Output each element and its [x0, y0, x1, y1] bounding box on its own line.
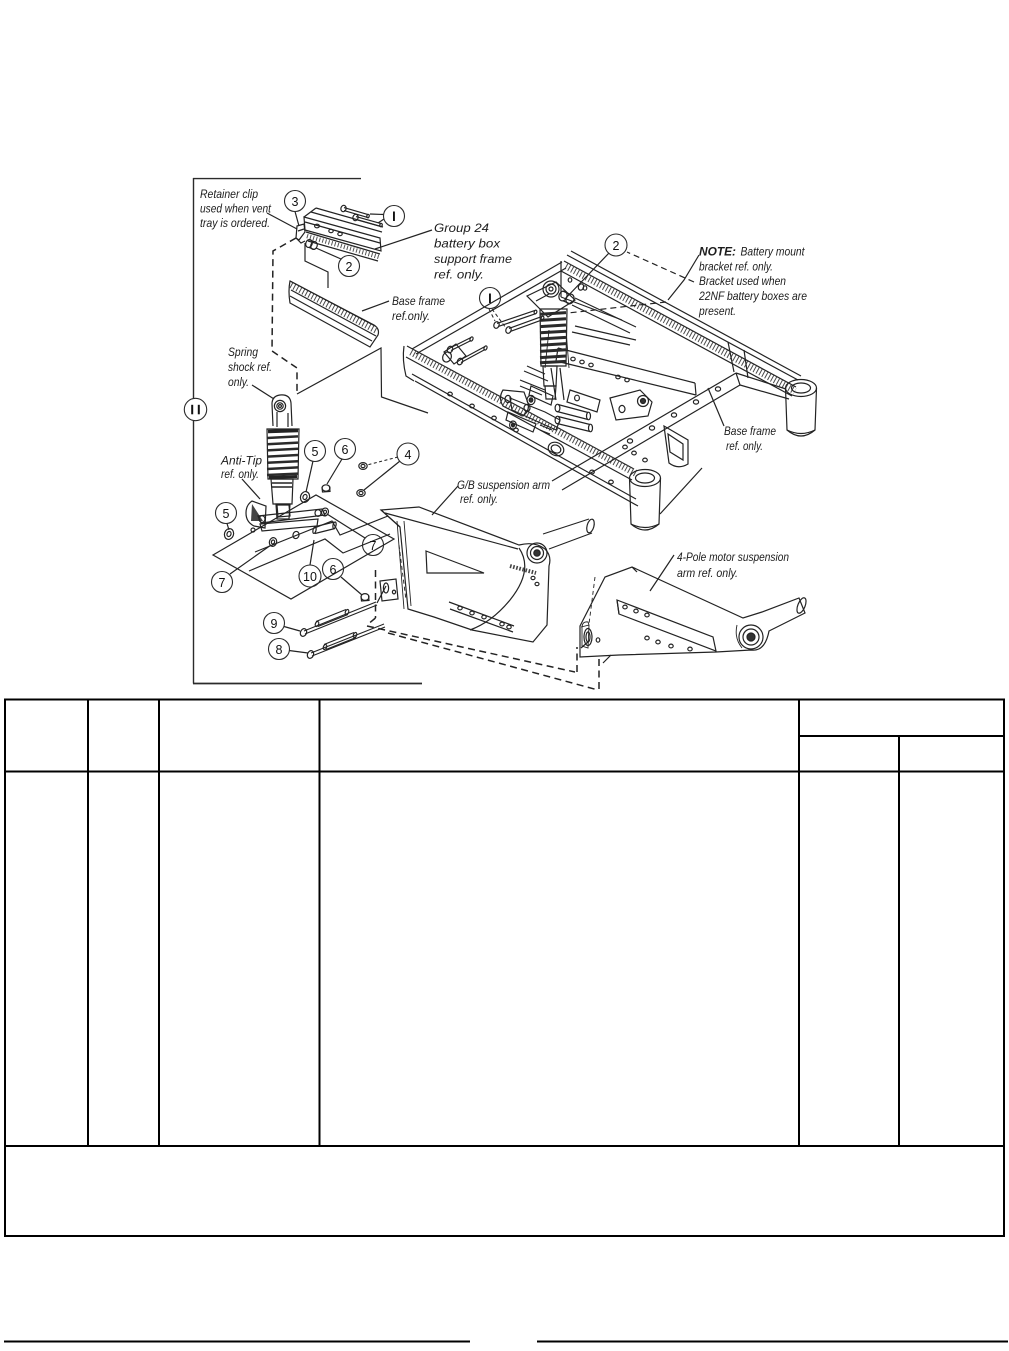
svg-text:Group 24: Group 24 [434, 221, 489, 235]
svg-text:ref. only.: ref. only. [221, 467, 259, 481]
svg-text:used when vent: used when vent [200, 202, 272, 216]
svg-text:Battery mount: Battery mount [741, 245, 806, 259]
svg-text:Base frame: Base frame [392, 294, 445, 308]
svg-text:support frame: support frame [434, 252, 512, 266]
svg-text:Spring: Spring [228, 345, 258, 359]
svg-text:7: 7 [370, 539, 377, 553]
svg-text:2: 2 [346, 260, 353, 274]
svg-text:NOTE:: NOTE: [699, 245, 736, 259]
svg-text:22NF battery boxes are: 22NF battery boxes are [698, 289, 807, 303]
svg-text:present.: present. [698, 304, 736, 318]
svg-text:6: 6 [330, 563, 337, 577]
svg-text:5: 5 [223, 507, 230, 521]
svg-text:10: 10 [303, 570, 317, 584]
svg-text:arm ref. only.: arm ref. only. [677, 566, 738, 580]
svg-text:3: 3 [292, 195, 299, 209]
svg-text:7: 7 [219, 576, 226, 590]
svg-text:only.: only. [228, 375, 249, 389]
svg-text:Bracket used when: Bracket used when [699, 274, 786, 288]
svg-text:ref. only.: ref. only. [726, 439, 763, 453]
svg-text:5: 5 [312, 445, 319, 459]
svg-text:bracket ref. only.: bracket ref. only. [699, 260, 773, 274]
svg-text:G/B suspension arm: G/B suspension arm [457, 478, 550, 492]
svg-text:2: 2 [613, 239, 620, 253]
svg-text:shock ref.: shock ref. [228, 360, 272, 374]
svg-text:Anti-Tip: Anti-Tip [220, 454, 262, 468]
svg-text:4-Pole motor suspension: 4-Pole motor suspension [677, 550, 789, 564]
svg-text:4: 4 [405, 448, 412, 462]
svg-text:ref. only.: ref. only. [460, 492, 498, 506]
svg-text:ref.only.: ref.only. [392, 309, 430, 323]
svg-text:6: 6 [342, 443, 349, 457]
svg-text:9: 9 [271, 617, 278, 631]
svg-text:Retainer clip: Retainer clip [200, 187, 258, 201]
svg-text:Base frame: Base frame [724, 424, 776, 438]
svg-text:battery box: battery box [434, 237, 501, 251]
svg-text:ref. only.: ref. only. [434, 268, 484, 282]
svg-text:8: 8 [276, 643, 283, 657]
svg-text:tray is ordered.: tray is ordered. [200, 216, 270, 230]
